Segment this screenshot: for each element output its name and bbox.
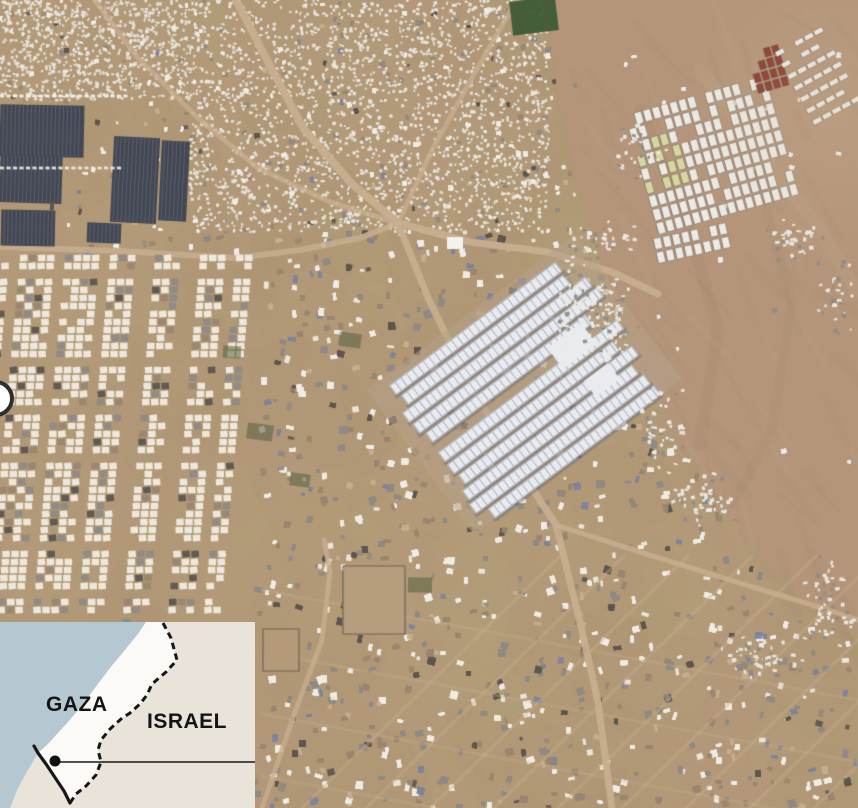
rafah-marker-dot xyxy=(50,756,61,767)
inset-map: GAZA ISRAEL xyxy=(0,622,255,808)
israel-label: ISRAEL xyxy=(147,711,227,732)
satellite-figure: GAZA ISRAEL xyxy=(0,0,858,808)
gaza-label: GAZA xyxy=(46,694,108,715)
